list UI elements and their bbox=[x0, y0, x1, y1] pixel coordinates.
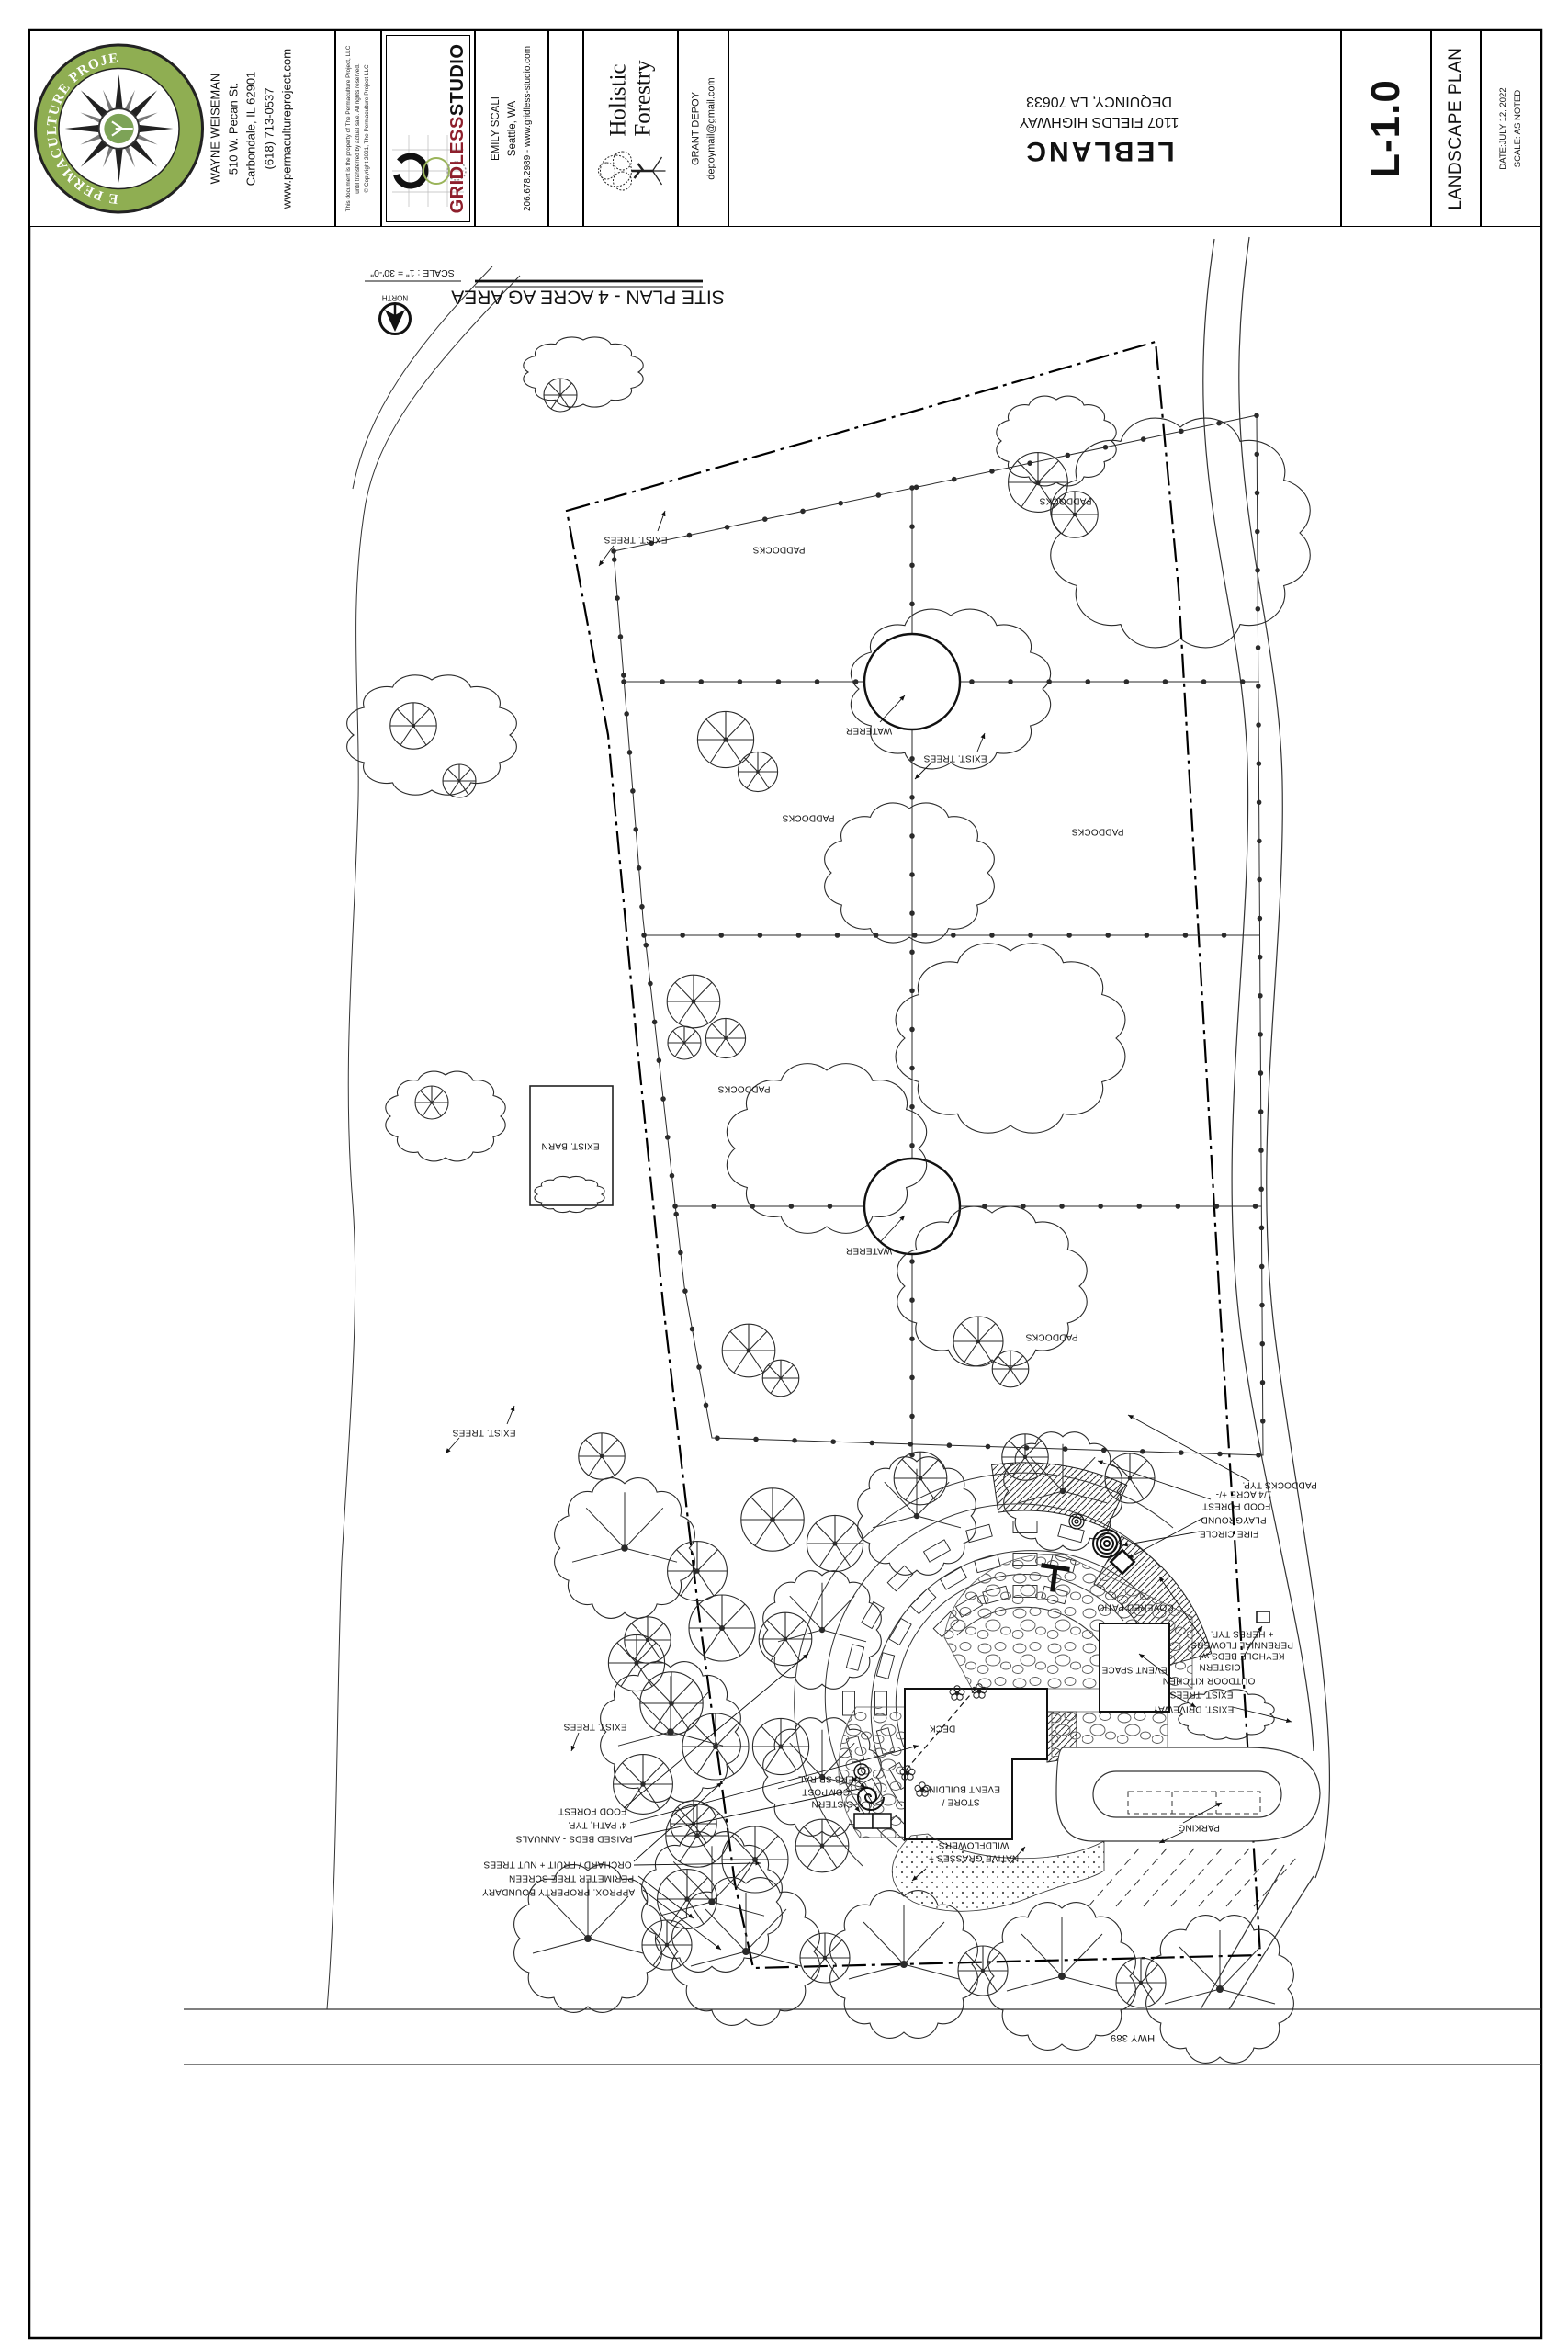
view-scale: SCALE : 1" = 30'-0" bbox=[370, 267, 455, 278]
north-arrow-label: NORTH bbox=[382, 294, 409, 302]
label-food-forest: FOOD FOREST bbox=[1202, 1501, 1270, 1511]
title-cell-sheet-title: LANDSCAPE PLAN bbox=[1431, 30, 1481, 227]
label-orchard: ORCHARD / FRUIT + NUT TREES bbox=[483, 1860, 631, 1870]
label-fire-circle: FIRE CIRCLE bbox=[1200, 1529, 1259, 1539]
label-waterer: WATERER bbox=[846, 726, 892, 736]
label-paddocks: PADDOCKS bbox=[1071, 827, 1123, 837]
label-raised-beds: RAISED BEDS - ANNUALS bbox=[515, 1834, 632, 1844]
label-property-boundary: APPROX. PROPERTY BOUNDARY bbox=[482, 1887, 635, 1897]
title-cell-legal: This document is the property of The Per… bbox=[335, 30, 381, 227]
label-exist-trees: EXIST. TREES bbox=[923, 753, 987, 763]
label-paddocks: PADDOCKS bbox=[1039, 496, 1091, 506]
sheet-number: L-1.0 bbox=[1363, 79, 1409, 178]
waterer-circle bbox=[864, 634, 960, 729]
store-event-building bbox=[905, 1689, 1047, 1839]
holistic-forestry-tree-logo bbox=[592, 144, 671, 198]
label-keyhole-beds: KEYHOLE BEDS w/ PERENNIAL FLOWERS + HERB… bbox=[1190, 1629, 1293, 1661]
label-paddocks: PADDOCKS bbox=[782, 813, 834, 823]
gridless-name-red: GRIDLESS bbox=[447, 116, 468, 213]
title-cell-emily: EMILY SCALI Seattle, WA 206.678.2989 - w… bbox=[475, 30, 548, 227]
title-cell-gridless: GRIDLESSSTUDIO bbox=[381, 30, 475, 227]
fire-circle bbox=[1093, 1530, 1121, 1557]
contact-phone: (618) 713-0537 bbox=[260, 49, 278, 209]
label-paddocks-typ: PADDOCKS TYP. bbox=[1242, 1480, 1317, 1490]
label-paddocks: PADDOCKS bbox=[752, 545, 805, 555]
contact-website: www.permacultureproject.com bbox=[277, 49, 296, 209]
contact-address2: Carbondale, IL 62901 bbox=[242, 49, 260, 209]
label-food-forest: FOOD FOREST bbox=[558, 1806, 626, 1816]
view-title: SITE PLAN - 4 ACRE AG AREA bbox=[451, 287, 725, 308]
sheet-date: DATE:JULY 12, 2022 bbox=[1496, 30, 1511, 227]
label-event-space: EVENT SPACE bbox=[1101, 1665, 1167, 1675]
paddock-fences bbox=[614, 415, 1263, 1455]
svg-text:NATIVE GRASSES +: NATIVE GRASSES + bbox=[929, 1853, 1019, 1863]
svg-text:KEYHOLE BEDS w/: KEYHOLE BEDS w/ bbox=[1199, 1651, 1284, 1661]
sheet-scale: SCALE: AS NOTED bbox=[1511, 30, 1526, 227]
project-address1: 1107 FIELDS HIGHWAY bbox=[1020, 111, 1179, 131]
label-quarter-acre: 1/4 ACRE +/- bbox=[1215, 1489, 1271, 1499]
holistic-contact-name: GRANT DEPOY bbox=[688, 30, 704, 227]
label-cistern: CISTERN bbox=[811, 1799, 852, 1809]
label-herb-spiral: HERB SPIRAL bbox=[798, 1774, 862, 1784]
label-playground: PLAYGROUND bbox=[1201, 1515, 1266, 1525]
holistic-contact-email: depoymail@gmail.com bbox=[704, 30, 719, 227]
legal-line2: until transferred by actual sale. All ri… bbox=[354, 30, 363, 227]
title-cell-project: LEBLANC 1107 FIELDS HIGHWAY DEQUINCY, LA… bbox=[728, 30, 1341, 227]
gridless-name-black: STUDIO bbox=[447, 44, 468, 117]
permaculture-project-logo: THE PERMACULTURE PROJECT Permaculture De… bbox=[31, 41, 206, 216]
label-parking: PARKING bbox=[1178, 1823, 1220, 1833]
drawing-sheet: EXIST. TREES EXIST. TREES EXIST. TREES E… bbox=[0, 0, 1568, 2352]
title-block: THE PERMACULTURE PROJECT Permaculture De… bbox=[29, 30, 1541, 227]
label-paddocks: PADDOCKS bbox=[717, 1084, 770, 1094]
label-paddocks: PADDOCKS bbox=[1025, 1332, 1077, 1342]
title-cell-holistic: Holistic Forestry bbox=[583, 30, 678, 227]
label-waterer: WATERER bbox=[846, 1246, 892, 1256]
title-cell-grant: GRANT DEPOY depoymail@gmail.com bbox=[678, 30, 728, 227]
svg-text:+ HERBS TYP.: + HERBS TYP. bbox=[1210, 1629, 1273, 1639]
north-arrow: NORTH bbox=[380, 294, 411, 334]
legal-line1: This document is the property of The Per… bbox=[344, 30, 354, 227]
waterer-circle bbox=[864, 1159, 960, 1254]
label-perimeter: PERIMETER TREE SCREEN bbox=[509, 1873, 634, 1883]
site-plan-drawing: EXIST. TREES EXIST. TREES EXIST. TREES E… bbox=[0, 0, 1568, 2352]
view-title-block: SITE PLAN - 4 ACRE AG AREA SCALE : 1" = … bbox=[365, 267, 725, 308]
label-outdoor-kitchen: OUTDOOR KITCHEN bbox=[1163, 1676, 1256, 1686]
label-exist-trees: EXIST. TREES bbox=[452, 1428, 515, 1438]
sheet-title: LANDSCAPE PLAN bbox=[1446, 48, 1466, 210]
small-spiral bbox=[1069, 1514, 1084, 1529]
client-name: LEBLANC bbox=[1023, 135, 1174, 166]
label-hwy-389: HWY 389 bbox=[1111, 2032, 1155, 2043]
svg-text:WILDFLOWERS: WILDFLOWERS bbox=[939, 1840, 1010, 1850]
gridless-wordmark: GRIDLESSSTUDIO bbox=[447, 34, 468, 223]
creek-line bbox=[327, 276, 520, 2009]
label-deck: DECK bbox=[930, 1724, 956, 1734]
label-cistern: CISTERN bbox=[1199, 1662, 1240, 1672]
label-exist-trees: EXIST. TREES bbox=[1169, 1690, 1233, 1700]
permaculture-contact: WAYNE WEISEMAN 510 W. Pecan St. Carbonda… bbox=[206, 49, 296, 209]
project-address2: DEQUINCY, LA 70633 bbox=[1020, 91, 1179, 111]
contact-name: WAYNE WEISEMAN bbox=[206, 49, 224, 209]
svg-text:STORE /: STORE / bbox=[942, 1797, 979, 1807]
contact-address1: 510 W. Pecan St. bbox=[224, 49, 243, 209]
label-exist-barn: EXIST. BARN bbox=[541, 1141, 599, 1151]
legal-line3: © Copyright 2021, The Permaculture Proje… bbox=[363, 30, 372, 227]
gridless-contact-city: Seattle, WA bbox=[505, 30, 521, 227]
holistic-forestry-wordmark: Holistic Forestry bbox=[606, 60, 655, 136]
title-cell-permaculture: THE PERMACULTURE PROJECT Permaculture De… bbox=[29, 30, 335, 227]
label-compost: COMPOST bbox=[802, 1787, 850, 1797]
title-cell-date-scale: DATE:JULY 12, 2022 SCALE: AS NOTED bbox=[1481, 30, 1541, 227]
title-cell-spacer bbox=[548, 30, 583, 227]
orchard-trees bbox=[608, 1488, 804, 1929]
svg-text:PERENNIAL FLOWERS: PERENNIAL FLOWERS bbox=[1190, 1640, 1293, 1650]
label-exist-trees: EXIST. TREES bbox=[563, 1722, 626, 1732]
svg-text:EVENT BUILDING: EVENT BUILDING bbox=[921, 1784, 1000, 1794]
label-exist-trees: EXIST. TREES bbox=[604, 535, 667, 545]
title-cell-sheet-number: L-1.0 bbox=[1341, 30, 1431, 227]
label-path-typ: 4' PATH, TYP. bbox=[568, 1820, 626, 1830]
label-covered-patio: COVERED PATIO bbox=[1097, 1602, 1173, 1612]
exist-trees bbox=[390, 379, 1098, 1396]
sheet-border bbox=[29, 30, 1541, 2338]
tree-clouds bbox=[347, 337, 1311, 1739]
gridless-contact-line: 206.678.2989 - www.gridless-studio.com bbox=[521, 30, 535, 227]
gridless-contact-name: EMILY SCALI bbox=[489, 30, 504, 227]
label-exist-driveway: EXIST. DRIVEWAY bbox=[1153, 1704, 1235, 1714]
